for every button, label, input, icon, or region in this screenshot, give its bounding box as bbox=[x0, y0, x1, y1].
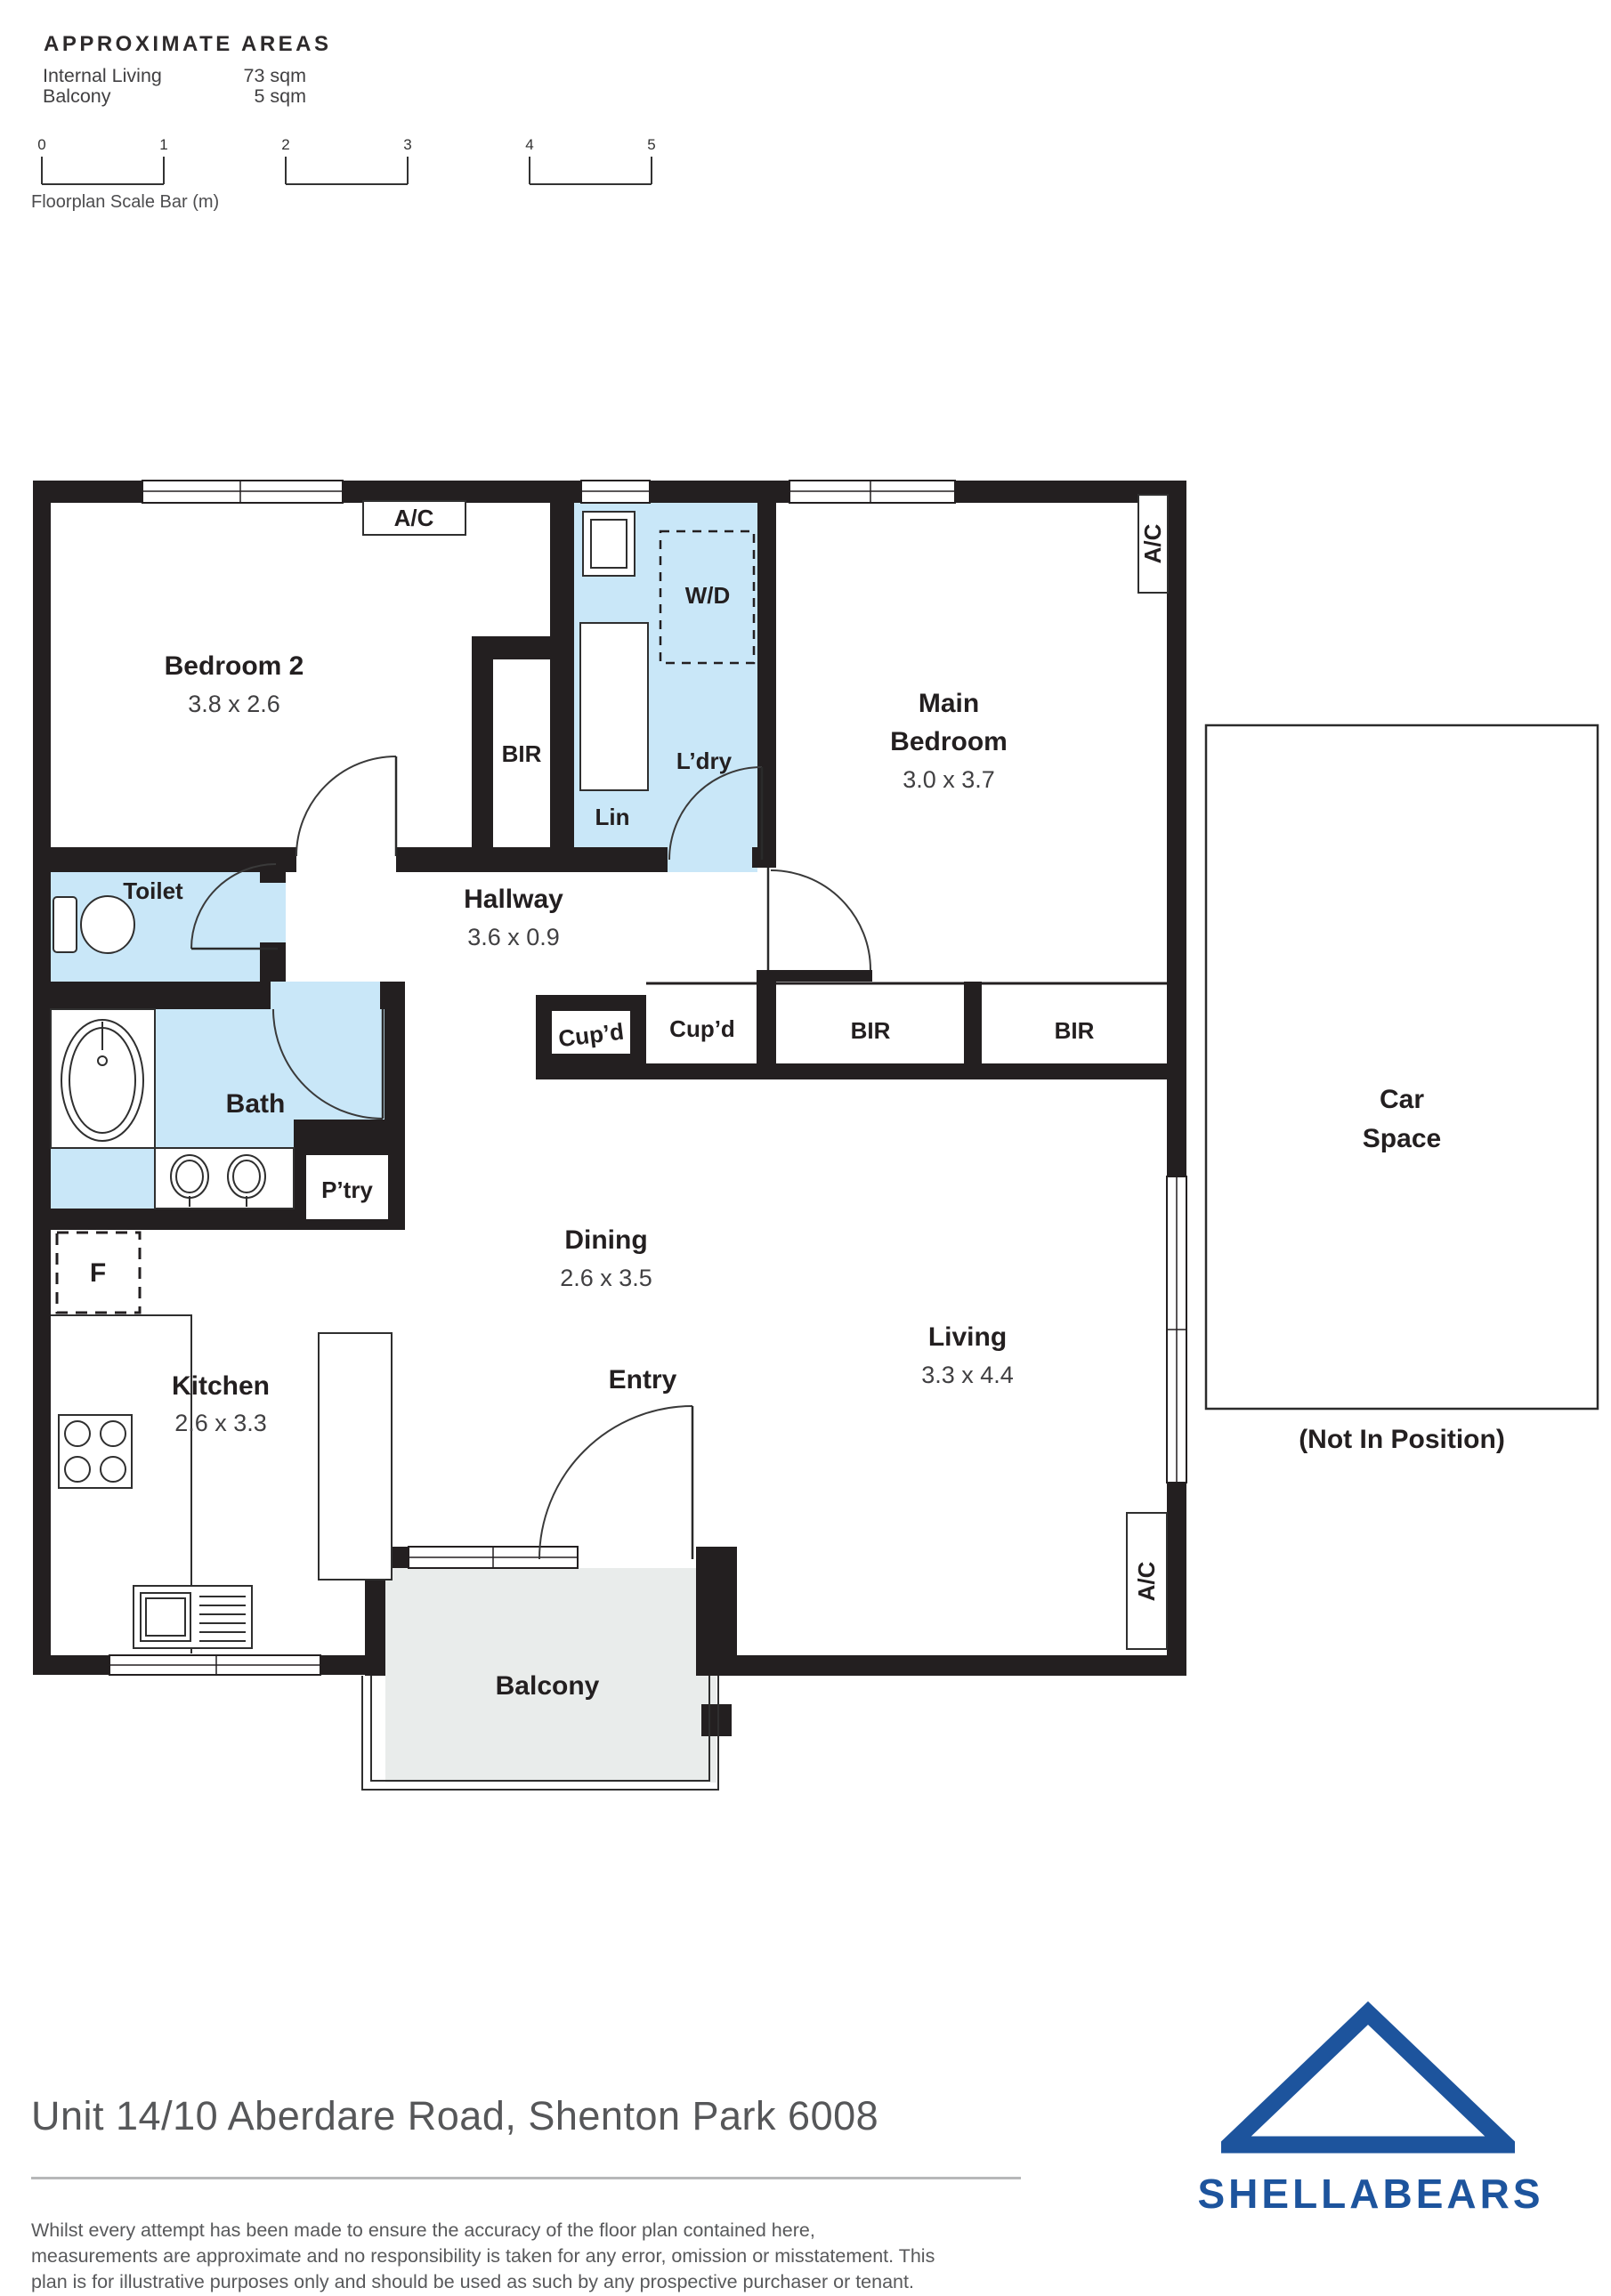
pantry-label: P’try bbox=[321, 1176, 373, 1203]
linen-label: Lin bbox=[595, 804, 630, 830]
laundry-sink bbox=[583, 512, 635, 576]
toilet-label: Toilet bbox=[123, 877, 183, 904]
living-ac-label: A/C bbox=[1133, 1561, 1160, 1601]
vanity-sinks bbox=[155, 1148, 294, 1209]
scale-bar-numbers: 0 1 2 3 4 5 bbox=[37, 136, 655, 153]
bir-left-label: BIR bbox=[851, 1017, 891, 1044]
bath-label: Bath bbox=[226, 1089, 286, 1119]
hallway-label: Hallway bbox=[464, 885, 563, 914]
living-dims: 3.3 x 4.4 bbox=[921, 1362, 1014, 1388]
scale-bar bbox=[42, 157, 652, 184]
svg-text:3: 3 bbox=[403, 136, 411, 153]
disclaimer-text: Whilst every attempt has been made to en… bbox=[31, 2218, 941, 2296]
entry-door bbox=[539, 1406, 692, 1559]
cupboard-label: Cup’d bbox=[669, 1015, 735, 1042]
svg-text:4: 4 bbox=[525, 136, 533, 153]
floorplan-page: { "approximate_areas": { "title": "APPRO… bbox=[0, 0, 1611, 2278]
laundry-window bbox=[581, 481, 650, 503]
car-space-outline bbox=[1206, 725, 1598, 1409]
laundry-label: L’dry bbox=[676, 748, 733, 774]
bedroom2-bir-label: BIR bbox=[502, 740, 542, 767]
main-bedroom-label-2: Bedroom bbox=[890, 727, 1008, 756]
car-space-label-1: Car bbox=[1380, 1085, 1424, 1114]
bedroom2-door bbox=[296, 756, 396, 856]
property-address: Unit 14/10 Aberdare Road, Shenton Park 6… bbox=[31, 2093, 878, 2139]
linen-cabinet bbox=[580, 623, 648, 790]
svg-text:5: 5 bbox=[647, 136, 655, 153]
svg-text:0: 0 bbox=[37, 136, 45, 153]
bir-right-label: BIR bbox=[1055, 1017, 1095, 1044]
dining-window bbox=[409, 1547, 578, 1568]
bedroom2-window bbox=[142, 481, 343, 503]
main-bedroom-door bbox=[768, 868, 870, 970]
main-bedroom-ac-label: A/C bbox=[1139, 523, 1166, 563]
floorplan-drawing: 0 1 2 3 4 5 bbox=[0, 0, 1611, 2278]
living-window bbox=[1167, 1176, 1186, 1483]
main-bedroom-dims: 3.0 x 3.7 bbox=[903, 766, 995, 793]
bedroom2-dims: 3.8 x 2.6 bbox=[188, 691, 280, 717]
hallway-dims: 3.6 x 0.9 bbox=[467, 924, 560, 950]
cooktop bbox=[59, 1415, 132, 1488]
dining-dims: 2.6 x 3.5 bbox=[560, 1265, 652, 1291]
entry-label: Entry bbox=[609, 1365, 677, 1395]
living-label: Living bbox=[928, 1322, 1007, 1352]
footer-divider bbox=[31, 2177, 1021, 2179]
main-bedroom-window bbox=[789, 481, 955, 503]
bathtub bbox=[51, 1009, 155, 1148]
kitchen-window bbox=[109, 1655, 320, 1675]
main-bedroom-label-1: Main bbox=[919, 689, 979, 718]
kitchen-dims: 2.6 x 3.3 bbox=[174, 1410, 267, 1436]
kitchen-sink bbox=[134, 1586, 252, 1648]
car-space-note: (Not In Position) bbox=[1299, 1425, 1505, 1454]
svg-text:1: 1 bbox=[159, 136, 167, 153]
toilet-fixture bbox=[53, 896, 134, 953]
shellabears-logo-icon bbox=[1221, 2001, 1515, 2161]
bedroom2-ac-label: A/C bbox=[394, 505, 434, 531]
fridge-label: F bbox=[90, 1258, 106, 1288]
dining-label: Dining bbox=[564, 1225, 647, 1255]
bedroom2-label: Bedroom 2 bbox=[165, 651, 304, 681]
balcony-label: Balcony bbox=[496, 1671, 600, 1701]
shellabears-brand-text: SHELLABEARS bbox=[1184, 2170, 1558, 2218]
svg-text:2: 2 bbox=[281, 136, 289, 153]
kitchen-label: Kitchen bbox=[172, 1371, 270, 1401]
wd-label: W/D bbox=[685, 582, 731, 609]
car-space-label-2: Space bbox=[1363, 1124, 1441, 1153]
